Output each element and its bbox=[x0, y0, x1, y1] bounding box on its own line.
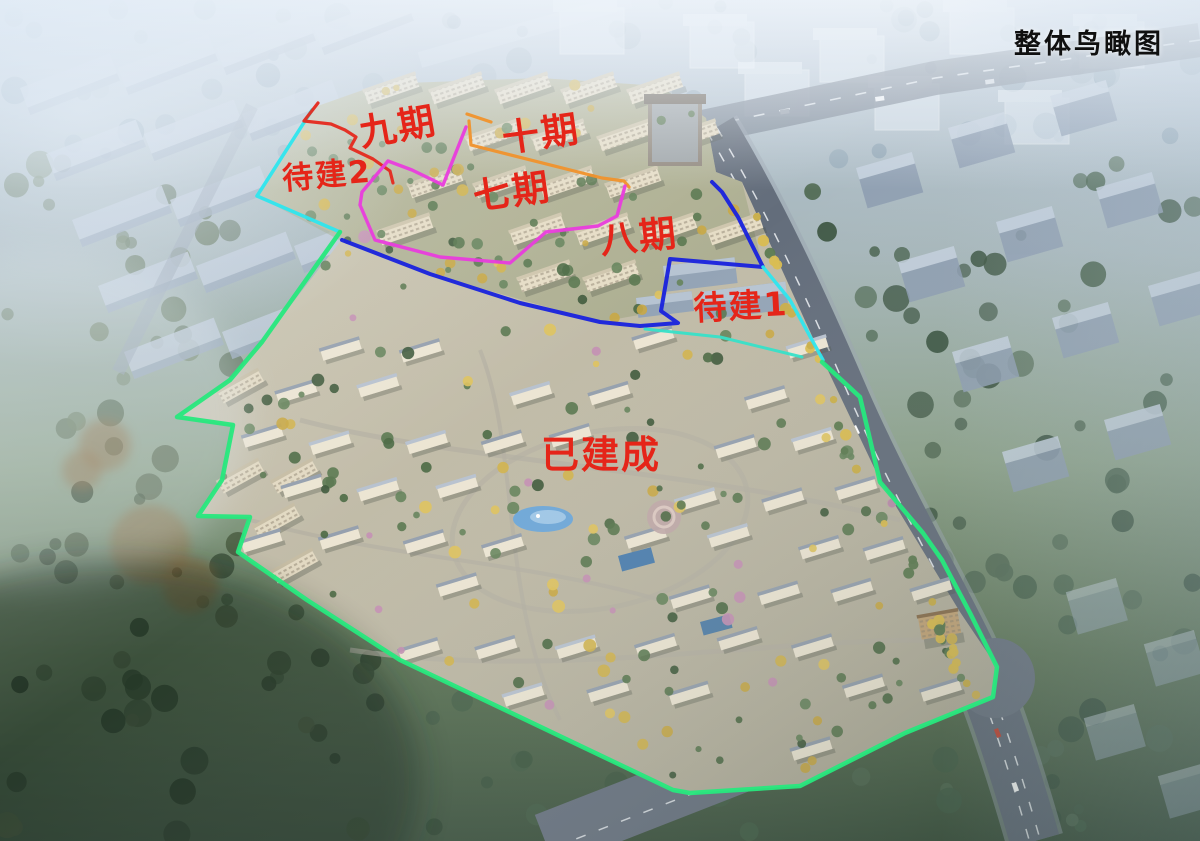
label-pending-1: 待建1 bbox=[693, 287, 790, 325]
label-built: 已建成 bbox=[541, 436, 661, 474]
label-pending-2: 待建2 bbox=[281, 157, 373, 196]
label-phase-8: 八期 bbox=[598, 215, 679, 260]
label-phase-7: 七期 bbox=[471, 168, 553, 215]
built-boundary-green bbox=[177, 232, 997, 793]
phase-boundary-overlay bbox=[0, 0, 1200, 841]
page-title: 整体鸟瞰图 bbox=[1014, 22, 1164, 61]
phase10-boundary-orange-tick bbox=[467, 114, 491, 122]
aerial-masterplan-render: 九期十期待建2七期八期待建1已建成 整体鸟瞰图 bbox=[0, 0, 1200, 841]
label-phase-10: 十期 bbox=[500, 110, 582, 157]
south-link-cyan bbox=[645, 329, 802, 357]
